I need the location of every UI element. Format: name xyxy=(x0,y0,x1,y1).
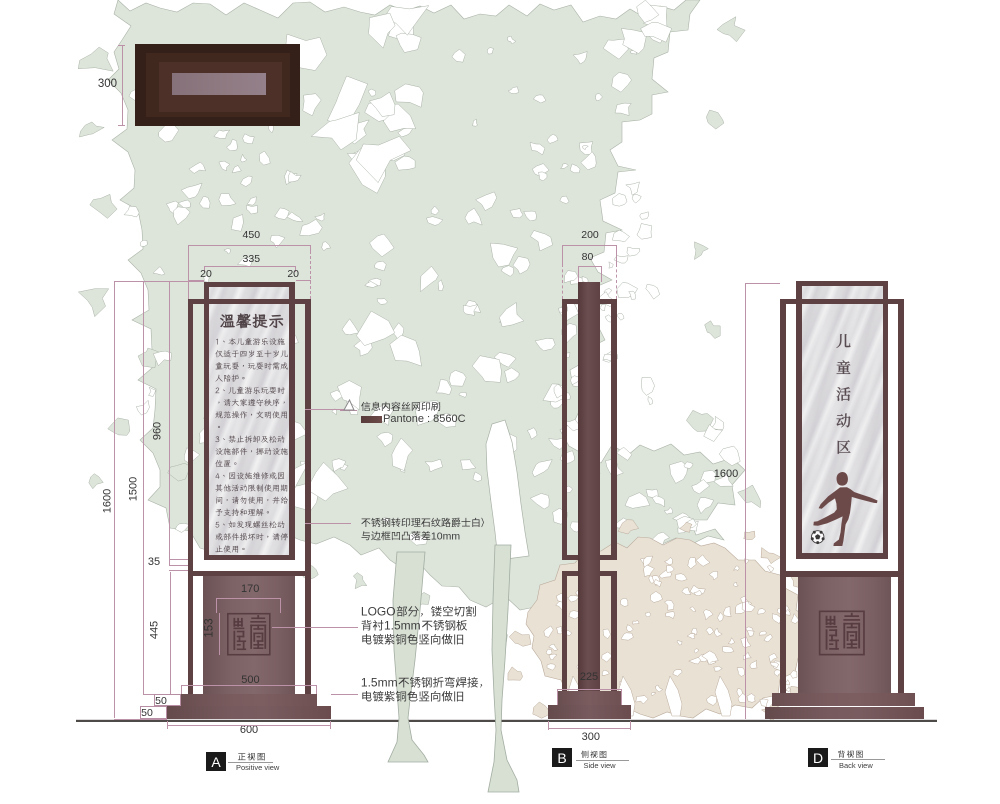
svg-text:1.5mm: 1.5mm xyxy=(384,619,421,633)
svg-text:10mm: 10mm xyxy=(431,531,460,543)
svg-text:LOGO: LOGO xyxy=(361,605,396,619)
svg-text:1.5mm: 1.5mm xyxy=(361,676,398,690)
